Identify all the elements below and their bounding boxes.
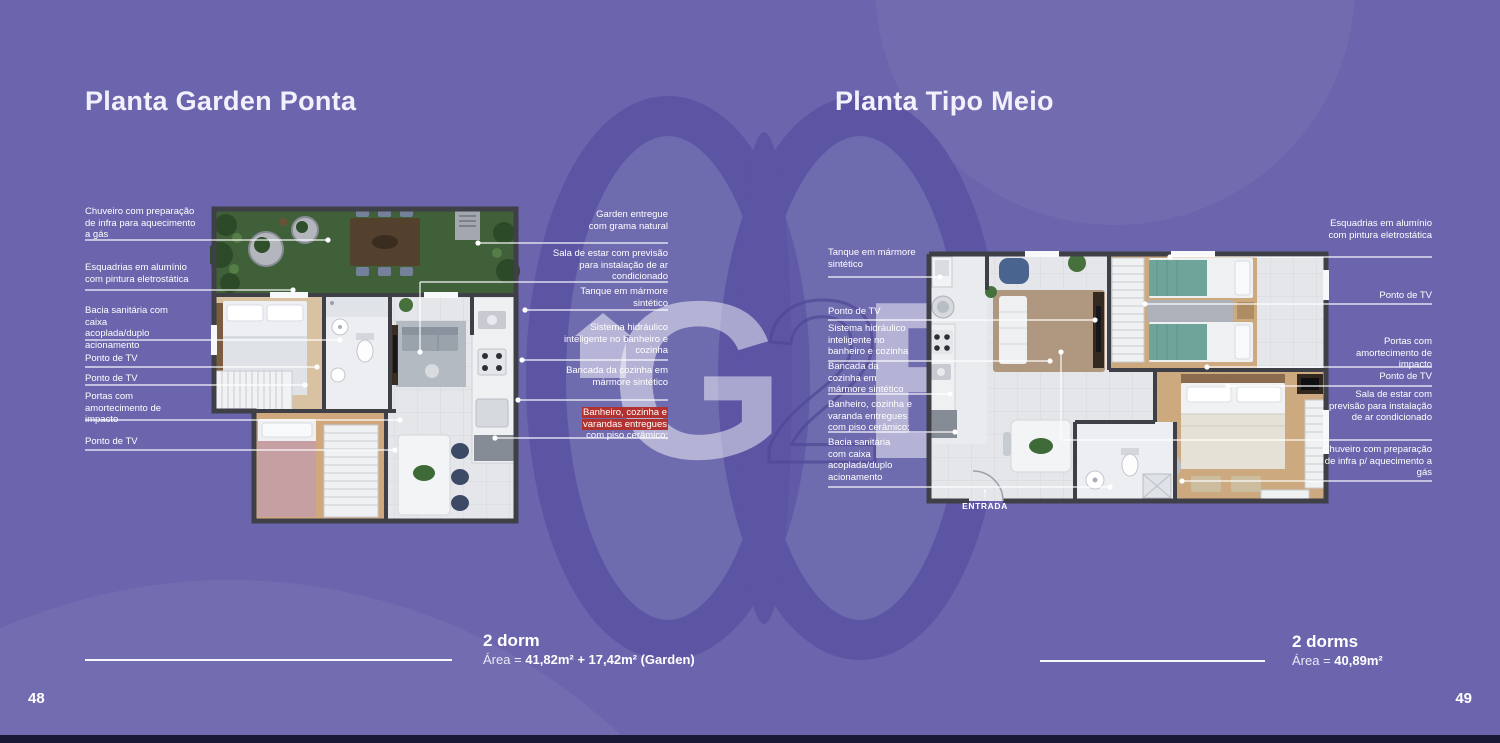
entrance-arrow-icon: ↑ [952,487,1018,501]
garden-area-label: Área = [483,652,522,667]
kitchen [929,254,987,444]
floor-plan-garden-ponta-image [210,205,520,525]
twin-bedroom [1109,254,1257,370]
callout-ponto-tv-tipo-1: Ponto de TV [828,306,924,318]
page-number-right: 49 [1455,690,1472,707]
brochure-page: G 2 E Planta Garden Ponta Planta Tipo Me… [0,0,1500,743]
entrance-marker: ↑ ENTRADA [952,487,1018,511]
callout-bacia-garden: Bacia sanitária com caixa acoplada/duplo… [85,305,173,351]
bathroom [324,295,390,411]
page-number-left: 48 [28,690,45,707]
plain-text-line-3: com piso cerâmico; [586,430,668,441]
bedroom-2 [254,411,386,521]
tipo-area-text: Área = 40,89m² [1292,653,1383,668]
bedroom-1 [214,295,324,411]
garden-dorm-count: 2 dorm [483,631,540,651]
floor-plan-tipo-meio [925,250,1330,505]
garden-area-value: 41,82m² + 17,42m² (Garden) [525,652,694,667]
tipo-footer-rule [1040,660,1265,662]
master-bedroom [1155,370,1327,502]
callout-tanque-tipo: Tanque em mármore sintético [828,247,924,270]
dining-area [1003,420,1071,472]
highlighted-text-line-2: varandas entregues [582,419,668,430]
callout-portas-tipo: Portas com amortecimento de impacto [1337,336,1432,371]
highlighted-text-line-1: Banheiro, cozinha e [582,407,668,418]
tipo-dorm-count: 2 dorms [1292,632,1358,652]
tipo-plan-title: Planta Tipo Meio [835,86,1054,117]
callout-sala-tipo: Sala de estar com previsão para instalaç… [1327,389,1432,424]
callout-ponto-tv-garden-3: Ponto de TV [85,436,165,448]
callout-bacia-tipo: Bacia sanitária com caixa acoplada/duplo… [828,437,908,483]
callout-ponto-tv-tipo-3: Ponto de TV [1352,371,1432,383]
callout-sistema-hidraulico-garden: Sistema hidráulico inteligente no banhei… [550,322,668,357]
callout-tanque-garden: Tanque em mármore sintético [558,286,668,309]
callout-portas-garden: Portas com amortecimento de impacto [85,391,185,426]
kitchen [472,297,516,463]
garden-area-text: Área = 41,82m² + 17,42m² (Garden) [483,652,695,667]
bathroom [1077,422,1173,500]
bottom-bar [0,735,1500,743]
callout-sistema-hidraulico-tipo: Sistema hidráulico inteligente no banhei… [828,323,920,358]
entrance-label: ENTRADA [952,501,1018,511]
callout-ponto-tv-garden-1: Ponto de TV [85,353,165,365]
dining-area [398,435,469,515]
callout-banheiro-piso-garden: Banheiro, cozinha e varandas entregues c… [548,407,668,442]
callout-esquadrias-tipo: Esquadrias em alumínio com pintura eletr… [1322,218,1432,241]
callout-garden-grama: Garden entregue com grama natural [580,209,668,232]
callout-sala-garden: Sala de estar com previsão para instalaç… [533,248,668,283]
callout-esquadrias-garden: Esquadrias em alumínio com pintura eletr… [85,262,197,285]
floor-plan-tipo-meio-image [925,250,1330,505]
callout-ponto-tv-tipo-2: Ponto de TV [1352,290,1432,302]
callout-banheiro-piso-tipo: Banheiro, cozinha e varanda entregues co… [828,399,924,434]
tipo-area-label: Área = [1292,653,1331,668]
callout-bancada-garden: Bancada da cozinha em mármore sintético [550,365,668,388]
garden-area [210,208,520,295]
callout-chuveiro-tipo: Chuveiro com preparação de infra p/ aque… [1312,444,1432,479]
tipo-area-value: 40,89m² [1334,653,1382,668]
garden-footer-rule [85,659,452,661]
callout-bancada-tipo: Bancada da cozinha em mármore sintético [828,361,912,396]
garden-plan-title: Planta Garden Ponta [85,86,356,117]
callout-chuveiro-garden: Chuveiro com preparação de infra para aq… [85,206,197,241]
callout-ponto-tv-garden-2: Ponto de TV [85,373,165,385]
floor-plan-garden-ponta [210,205,520,525]
